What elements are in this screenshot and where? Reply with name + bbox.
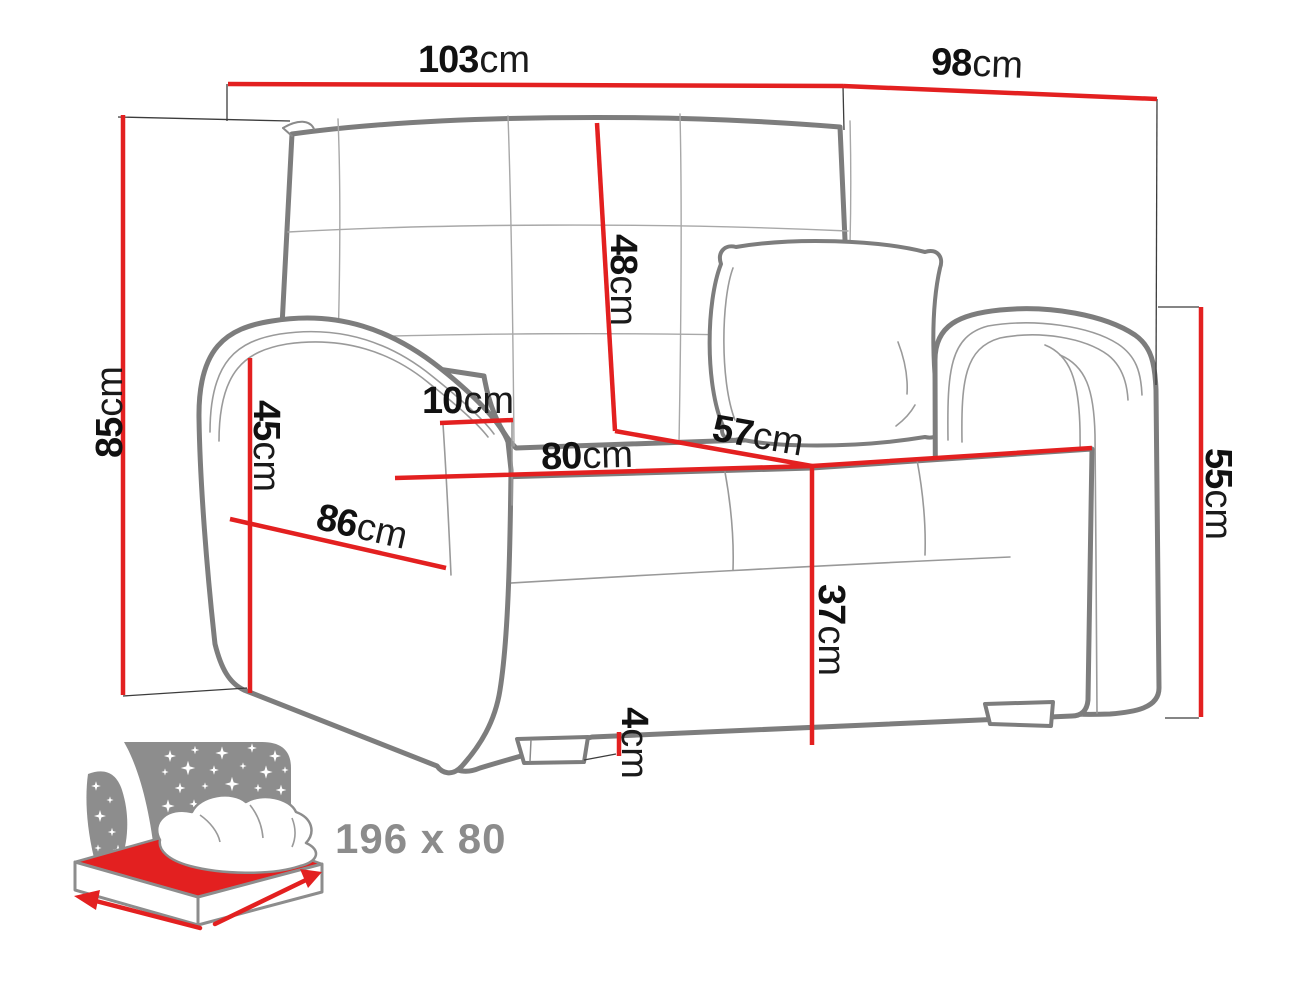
dim-value: 4	[613, 707, 655, 727]
dim-value: 48	[602, 234, 644, 274]
dim-unit: cm	[479, 39, 530, 81]
dim-label-armrest-side-height: 55cm	[1199, 448, 1237, 540]
dim-value: 45	[245, 400, 287, 440]
dim-value: 80	[540, 435, 581, 478]
dim-unit: cm	[613, 728, 655, 779]
dim-value: 57	[709, 407, 756, 455]
sofa-dimension-diagram	[0, 0, 1311, 983]
dim-label-leg-height: 4cm	[615, 707, 653, 779]
dim-label-overall-depth: 98cm	[930, 43, 1023, 85]
night-sky-small-panel	[86, 771, 127, 858]
dim-value: 55	[1197, 448, 1239, 488]
dim-unit: cm	[582, 434, 634, 477]
dim-unit: cm	[89, 366, 131, 417]
dim-label-seat-height: 37cm	[812, 584, 850, 676]
dim-value: 103	[418, 39, 478, 81]
front-left-leg	[517, 737, 588, 763]
dim-value: 10	[422, 380, 462, 422]
dim-line-overall-depth	[843, 86, 1157, 99]
leg-seam	[530, 740, 531, 761]
dim-value: 85	[89, 418, 131, 458]
dim-label-seat-width: 80cm	[541, 436, 634, 476]
dim-unit: cm	[245, 441, 287, 492]
sleeping-area-label: 196 x 80	[335, 818, 507, 860]
dim-unit: cm	[750, 415, 807, 465]
dim-unit: cm	[971, 43, 1023, 87]
dim-value: 98	[930, 41, 972, 85]
dim-value: 37	[810, 584, 852, 624]
dim-label-armrest-top-width: 10cm	[422, 382, 514, 420]
dim-unit: cm	[602, 275, 644, 326]
sleeper-bed-icon	[74, 742, 322, 928]
dim-unit: cm	[463, 380, 514, 422]
dim-unit: cm	[1197, 489, 1239, 540]
dim-unit: cm	[810, 625, 852, 676]
dim-label-backrest-height: 48cm	[604, 234, 642, 326]
front-right-leg	[985, 702, 1053, 726]
dim-label-overall-width: 103cm	[418, 41, 530, 79]
diagram-canvas: 103cm 98cm 85cm 48cm 10cm 45cm 86cm 80cm…	[0, 0, 1311, 983]
dim-label-overall-height: 85cm	[91, 366, 129, 458]
dim-label-armrest-front-height: 45cm	[247, 400, 285, 492]
dim-line-overall-width	[228, 84, 843, 86]
